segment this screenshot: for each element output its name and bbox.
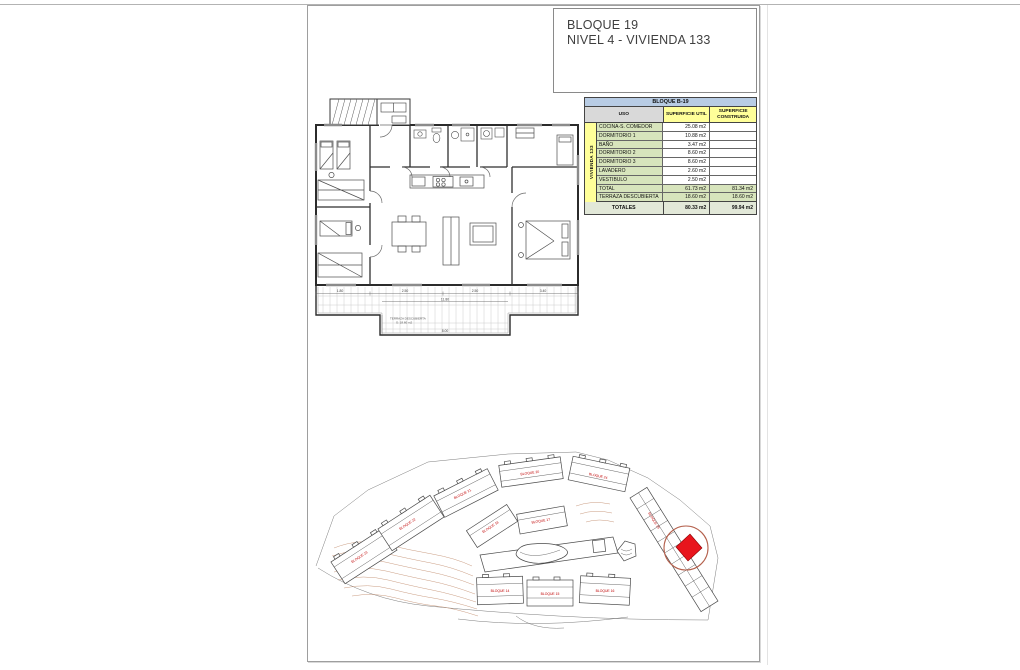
terrace-grid bbox=[318, 287, 576, 333]
area-table: BLOQUE B-19 USO SUPERFICIE UTIL SUPERFIC… bbox=[584, 97, 757, 215]
table-cell: 18.60 m2 bbox=[710, 193, 756, 201]
terrace-label-2: S: 18.60 m2 bbox=[396, 321, 413, 325]
column-uso: USO bbox=[585, 107, 664, 122]
table-row: BAÑO3.47 m2 bbox=[597, 141, 756, 150]
table-cell: VESTIBULO bbox=[597, 176, 663, 184]
table-cell: 10.88 m2 bbox=[663, 132, 710, 140]
pool-area bbox=[480, 537, 636, 572]
vivienda-row-group-label: VIVIENDA 133 bbox=[585, 123, 597, 202]
site-block bbox=[568, 453, 630, 491]
page-edge-rule bbox=[767, 5, 768, 665]
apartment-outer-wall bbox=[316, 125, 578, 285]
table-row: VESTIBULO2.50 m2 bbox=[597, 176, 756, 185]
table-cell: 8.60 m2 bbox=[663, 158, 710, 166]
title-line-2: NIVEL 4 - VIVIENDA 133 bbox=[567, 33, 756, 48]
table-row: LAVADERO2.60 m2 bbox=[597, 167, 756, 176]
column-superficie-construida: SUPERFICIE CONSTRUIDA bbox=[710, 107, 756, 122]
site-buildings bbox=[329, 453, 718, 611]
totals-util: 80.33 m2 bbox=[664, 202, 711, 214]
table-cell: 25.08 m2 bbox=[663, 123, 710, 131]
table-cell: DORMITORIO 3 bbox=[597, 158, 663, 166]
table-row: DORMITORIO 28.60 m2 bbox=[597, 149, 756, 158]
page: { "title_block": { "line1": "BLOQUE 19",… bbox=[0, 0, 1020, 670]
table-row: DORMITORIO 110.88 m2 bbox=[597, 132, 756, 141]
table-cell: 18.60 m2 bbox=[663, 193, 710, 201]
table-row: TOTAL61.73 m281.34 m2 bbox=[597, 185, 756, 194]
block-label: BLOQUE 16 bbox=[596, 589, 615, 593]
dim-5: 11.80 bbox=[441, 298, 449, 302]
dim-2: 2.50 bbox=[402, 289, 409, 293]
dim-1: 1.80 bbox=[337, 289, 344, 293]
table-cell: LAVADERO bbox=[597, 167, 663, 175]
area-table-columns: USO SUPERFICIE UTIL SUPERFICIE CONSTRUID… bbox=[585, 107, 756, 123]
table-cell: COCINA-S. COMEDOR bbox=[597, 123, 663, 131]
totals-label: TOTALES bbox=[585, 202, 664, 214]
table-cell bbox=[710, 167, 756, 175]
table-row: DORMITORIO 38.60 m2 bbox=[597, 158, 756, 167]
title-line-1: BLOQUE 19 bbox=[567, 18, 756, 33]
site-block-strip bbox=[630, 487, 718, 611]
site-plan: BLOQUE 23 BLOQUE 22 BLOQUE 21 BLOQUE 20 … bbox=[308, 448, 720, 633]
dim-4: 3.40 bbox=[540, 289, 547, 293]
table-cell: DORMITORIO 1 bbox=[597, 132, 663, 140]
area-table-totals: TOTALES 80.33 m2 99.94 m2 bbox=[585, 202, 756, 214]
table-cell: BAÑO bbox=[597, 141, 663, 149]
table-cell: 3.47 m2 bbox=[663, 141, 710, 149]
table-row: COCINA-S. COMEDOR25.08 m2 bbox=[597, 123, 756, 132]
block-label: BLOQUE 14 bbox=[491, 589, 510, 593]
area-table-header: BLOQUE B-19 bbox=[585, 98, 756, 107]
dim-3: 2.50 bbox=[472, 289, 479, 293]
stairwell bbox=[330, 99, 377, 125]
table-cell bbox=[710, 123, 756, 131]
title-block: BLOQUE 19 NIVEL 4 - VIVIENDA 133 bbox=[553, 8, 757, 93]
elevator bbox=[377, 99, 410, 125]
table-cell: DORMITORIO 2 bbox=[597, 149, 663, 157]
dim-6: 8.00 bbox=[442, 329, 449, 333]
table-cell: 2.60 m2 bbox=[663, 167, 710, 175]
table-cell bbox=[710, 158, 756, 166]
column-superficie-util: SUPERFICIE UTIL bbox=[664, 107, 711, 122]
table-cell: TOTAL bbox=[597, 185, 663, 193]
table-cell: 61.73 m2 bbox=[663, 185, 710, 193]
table-cell bbox=[710, 141, 756, 149]
block-label: BLOQUE 15 bbox=[541, 592, 560, 596]
table-cell: 2.50 m2 bbox=[663, 176, 710, 184]
table-cell: 81.34 m2 bbox=[710, 185, 756, 193]
table-cell bbox=[710, 132, 756, 140]
totals-construida: 99.94 m2 bbox=[710, 202, 756, 214]
table-cell bbox=[710, 176, 756, 184]
table-row: TERRAZA DESCUBIERTA18.60 m218.60 m2 bbox=[597, 193, 756, 202]
table-cell: 8.60 m2 bbox=[663, 149, 710, 157]
table-cell bbox=[710, 149, 756, 157]
floor-plan: 1.80 2.50 2.50 3.40 11.80 8.00 TERRAZA D… bbox=[312, 95, 580, 348]
terrace: 1.80 2.50 2.50 3.40 11.80 8.00 TERRAZA D… bbox=[316, 285, 578, 336]
table-cell: TERRAZA DESCUBIERTA bbox=[597, 193, 663, 201]
area-table-rows: COCINA-S. COMEDOR25.08 m2DORMITORIO 110.… bbox=[597, 123, 756, 202]
